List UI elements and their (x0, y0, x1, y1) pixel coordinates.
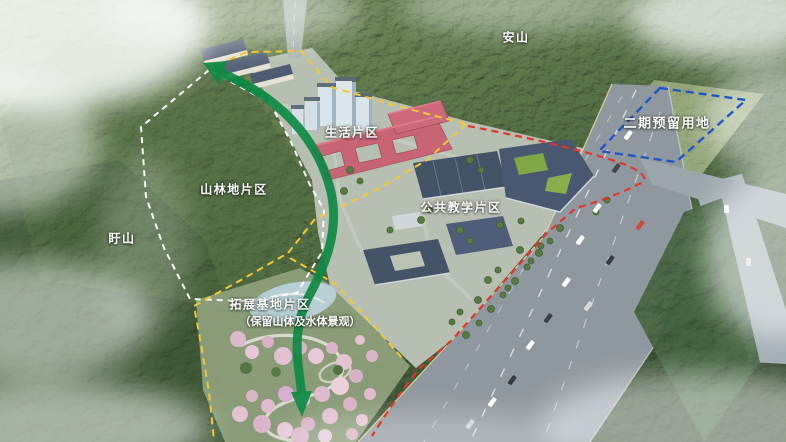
color-grade-overlay (0, 0, 786, 442)
site-plan-rendering: 安山 二期预留用地 生活片区 山林地片区 盱山 公共教学片区 拓展基地片区 （保… (0, 0, 786, 442)
rendering-canvas (0, 0, 786, 442)
